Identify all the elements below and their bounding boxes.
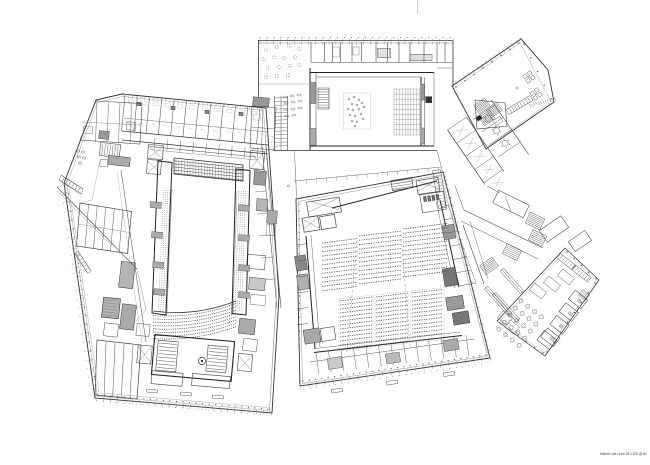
svg-text:Malmö Live Level 02 1:200 @ A1: Malmö Live Level 02 1:200 @ A1 — [600, 452, 647, 456]
